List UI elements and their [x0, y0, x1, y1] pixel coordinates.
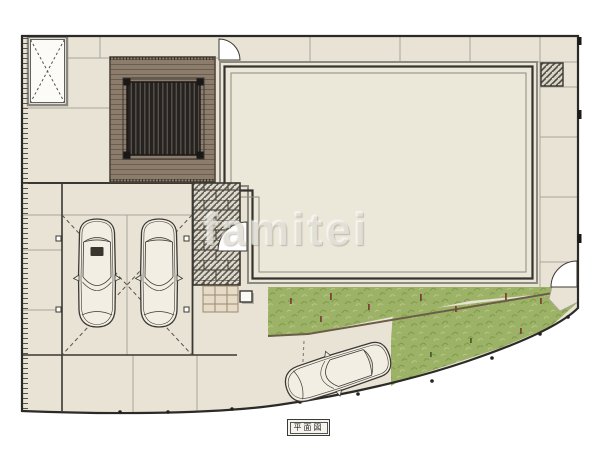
crossed-rectangle-marker — [28, 37, 67, 105]
pergola — [123, 78, 204, 159]
hatched-utility-square — [541, 63, 563, 86]
building-footprint — [220, 62, 537, 283]
entrance-steps — [203, 286, 238, 312]
plan-title-box: 平面図 — [287, 419, 330, 436]
utility-box — [240, 291, 254, 304]
parked-car-2 — [136, 219, 183, 327]
site-plan-canvas: famitei 平面図 — [0, 0, 600, 450]
site-plan-drawing — [0, 0, 600, 450]
plan-title-label: 平面図 — [290, 422, 328, 434]
car-sunroof — [91, 247, 104, 256]
parked-car-1 — [74, 219, 121, 327]
